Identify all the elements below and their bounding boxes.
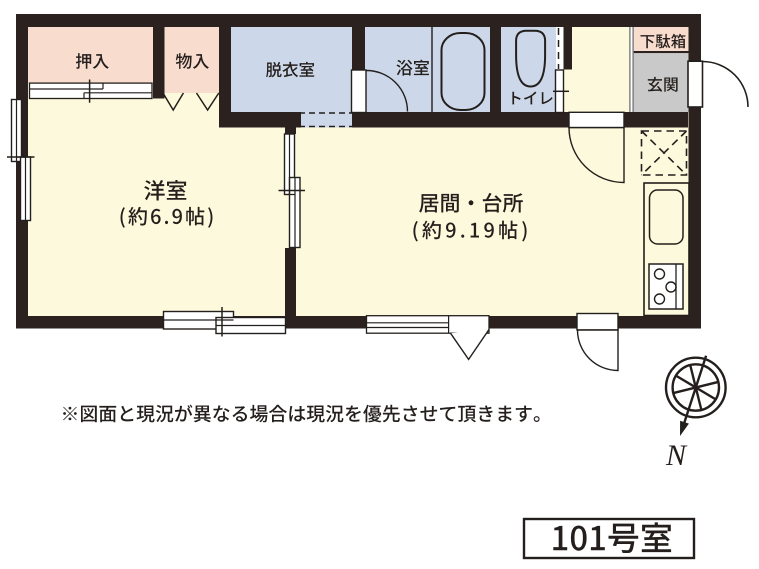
svg-text:N: N (665, 439, 688, 472)
